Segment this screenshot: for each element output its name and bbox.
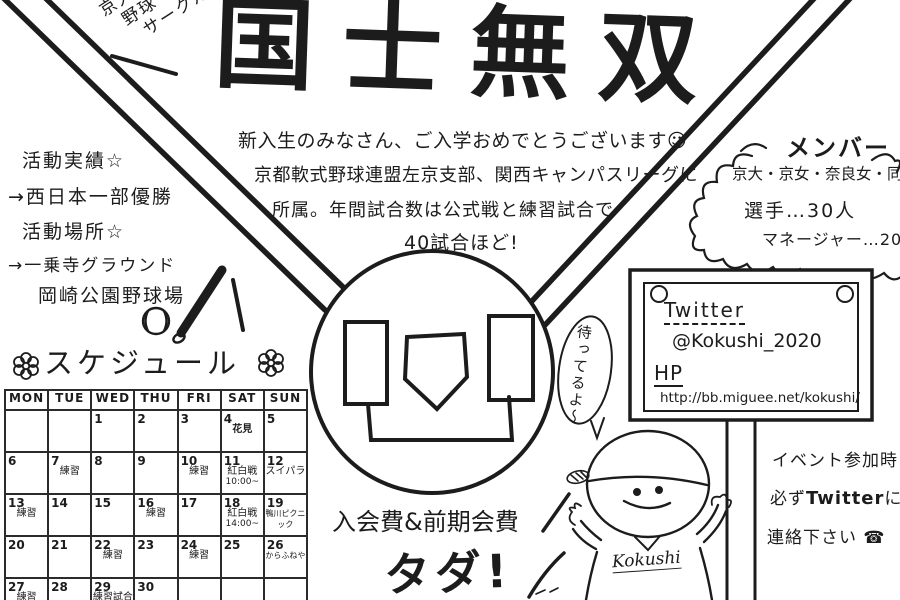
mascot-eye [656, 487, 662, 493]
mascot-arm-right [704, 511, 726, 542]
calendar-day-number: 5 [267, 412, 275, 426]
calendar-day-number: 19 [267, 496, 284, 510]
calendar-day-number: 15 [94, 496, 111, 510]
greeting-line: 40試合ほど! [404, 228, 519, 255]
sign-hp-label: HP [654, 361, 683, 387]
calendar-cell: 20 [5, 536, 48, 578]
field-diagram [311, 251, 553, 493]
calendar-cell: 16練習 [134, 494, 177, 536]
calendar-cell: 11紅白戦10:00~ [221, 452, 264, 494]
mascot-head [587, 431, 709, 537]
calendar-day-number: 16 [137, 496, 154, 510]
calendar: MONTUEWEDTHUFRISATSUN1234花見567練習8910練習11… [4, 389, 308, 600]
calendar-day-number: 1 [94, 412, 102, 426]
contact-pre: 必ず [770, 489, 806, 509]
calendar-day-number: 13 [8, 496, 25, 510]
sign-url: http://bb.miguee.net/kokushi/ [660, 390, 860, 406]
calendar-cell: 6 [5, 452, 48, 494]
calendar-cell: 3 [178, 410, 221, 452]
batter-box-right [489, 316, 533, 400]
calendar-day-number: 17 [181, 496, 198, 510]
calendar-day-number: 6 [8, 454, 16, 468]
calendar-cell: 10練習 [178, 452, 221, 494]
calendar-day-number: 26 [267, 538, 284, 552]
fee-label: 入会費&前期会費 [332, 502, 519, 537]
calendar-day-number: 30 [137, 580, 154, 594]
flower-icon-left [14, 353, 38, 379]
calendar-day-number: 14 [51, 496, 68, 510]
calendar-cell: 18紅白戦14:00~ [221, 494, 264, 536]
calendar-header-cell: THU [134, 390, 177, 410]
calendar-cell: 29練習試合 [91, 578, 134, 600]
contact-line: イベント参加時 [772, 446, 898, 471]
mascot-body [700, 548, 712, 600]
greeting-line: 京都軟式野球連盟左京支部、関西キャンパスリーグに [254, 161, 698, 187]
calendar-day-number: 4 [224, 412, 232, 426]
calendar-day-number: 11 [224, 454, 241, 468]
calendar-day-number: 9 [137, 454, 145, 468]
greeting-line: 新入生のみなさん、ご入学おめでとうございます☺ [238, 126, 687, 153]
members-managers: マネージャー…20人 [762, 226, 900, 250]
members-title: メンバー [786, 128, 890, 163]
calendar-cell: 21 [48, 536, 91, 578]
poster-title: 国士無双 [213, 0, 728, 112]
schedule-title: スケジュール [44, 340, 240, 382]
calendar-cell [48, 410, 91, 452]
calendar-cell: 2 [134, 410, 177, 452]
mascot-arm-left [581, 521, 601, 540]
calendar-header-cell: FRI [178, 390, 221, 410]
calendar-event-time: 14:00~ [222, 519, 263, 529]
calendar-day-number: 25 [224, 538, 241, 552]
calendar-day-number: 2 [137, 412, 145, 426]
calendar-cell: 25 [221, 536, 264, 578]
calendar-day-number: 29 [94, 580, 111, 594]
stray-stroke [233, 280, 243, 330]
calendar-cell: 1 [91, 410, 134, 452]
calendar-cell [178, 578, 221, 600]
calendar-cell: 7練習 [48, 452, 91, 494]
calendar-cell: 30 [134, 578, 177, 600]
calendar-cell [5, 410, 48, 452]
calendar-day-number: 28 [51, 580, 68, 594]
fee-value: タダ! [383, 535, 513, 600]
calendar-day-number: 18 [224, 496, 241, 510]
calendar-header-cell: SAT [221, 390, 264, 410]
calendar-cell [264, 578, 307, 600]
calendar-day-number: 20 [8, 538, 25, 552]
calendar-cell [221, 578, 264, 600]
calendar-day-number: 10 [181, 454, 198, 468]
contact-text: 連絡下さい [767, 528, 857, 548]
motion-stroke [529, 553, 564, 597]
home-plate [405, 334, 467, 409]
contact-post: に [884, 489, 900, 509]
calendar-event-time: 10:00~ [222, 477, 263, 487]
calendar-cell: 13練習 [5, 494, 48, 536]
calendar-cell: 12スイパラ [264, 452, 307, 494]
activity-place-label: 活動場所☆ [22, 217, 125, 244]
sign-twitter-handle: @Kokushi_2020 [672, 330, 822, 352]
calendar-cell: 5 [264, 410, 307, 452]
phone-doodle: ☎ [863, 528, 885, 548]
calendar-cell: 4花見 [221, 410, 264, 452]
members-players: 選手…30人 [744, 196, 856, 223]
calendar-day-number: 24 [181, 538, 198, 552]
calendar-header-cell: WED [91, 390, 134, 410]
calendar-event: 鴨川ピクニック [265, 508, 306, 530]
calendar-header-cell: MON [5, 390, 48, 410]
calendar-day-number: 7 [51, 454, 59, 468]
calendar-cell: 17 [178, 494, 221, 536]
calendar-day-number: 12 [267, 454, 284, 468]
hand-scribble [536, 588, 558, 594]
activity-place-value: →一乗寺グラウンド [8, 251, 176, 276]
calendar-header-cell: TUE [48, 390, 91, 410]
greeting-line: 所属。年間試合数は公式戦と練習試合で [272, 196, 614, 222]
contact-line: 必ずTwitterに [770, 484, 900, 509]
mascot-hand-left [570, 503, 581, 525]
calendar-cell: 28 [48, 578, 91, 600]
calendar-cell: 19鴨川ピクニック [264, 494, 307, 536]
contact-line: 連絡下さい ☎ [767, 523, 886, 548]
flower-icon-right [259, 350, 283, 376]
activity-results-label: 活動実績☆ [22, 146, 125, 173]
calendar-cell: 23 [134, 536, 177, 578]
calendar-cell: 26からふねや [264, 536, 307, 578]
contact-twitter-word: Twitter [806, 488, 884, 509]
motion-stroke [543, 494, 569, 531]
calendar-day-number: 22 [94, 538, 111, 552]
mascot-character [529, 431, 731, 600]
calendar-cell: 14 [48, 494, 91, 536]
mascot-body [586, 552, 597, 600]
calendar-day-number: 3 [181, 412, 189, 426]
members-schools: 京大・京女・奈良女・同女 [732, 162, 900, 184]
calendar-day-number: 8 [94, 454, 102, 468]
poster-canvas: 京大 野球 サークル 国士無双 新入生のみなさん、ご入学おめでとうございます☺ … [0, 0, 900, 600]
baseball-icon [143, 308, 169, 334]
calendar-cell: 15 [91, 494, 134, 536]
calendar-day-number: 23 [137, 538, 154, 552]
calendar-cell: 27練習 [5, 578, 48, 600]
calendar-cell: 24練習 [178, 536, 221, 578]
calendar-cell: 8 [91, 452, 134, 494]
calendar-cell: 22練習 [91, 536, 134, 578]
calendar-header-cell: SUN [264, 390, 307, 410]
calendar-cell: 9 [134, 452, 177, 494]
batter-box-left [345, 322, 387, 404]
sign-twitter-label: Twitter [664, 298, 745, 325]
calendar-day-number: 21 [51, 538, 68, 552]
activity-place-value: 岡崎公園野球場 [38, 281, 185, 308]
calendar-day-number: 27 [8, 580, 25, 594]
mascot-eye [634, 489, 640, 495]
activity-results-value: →西日本一部優勝 [8, 182, 173, 209]
